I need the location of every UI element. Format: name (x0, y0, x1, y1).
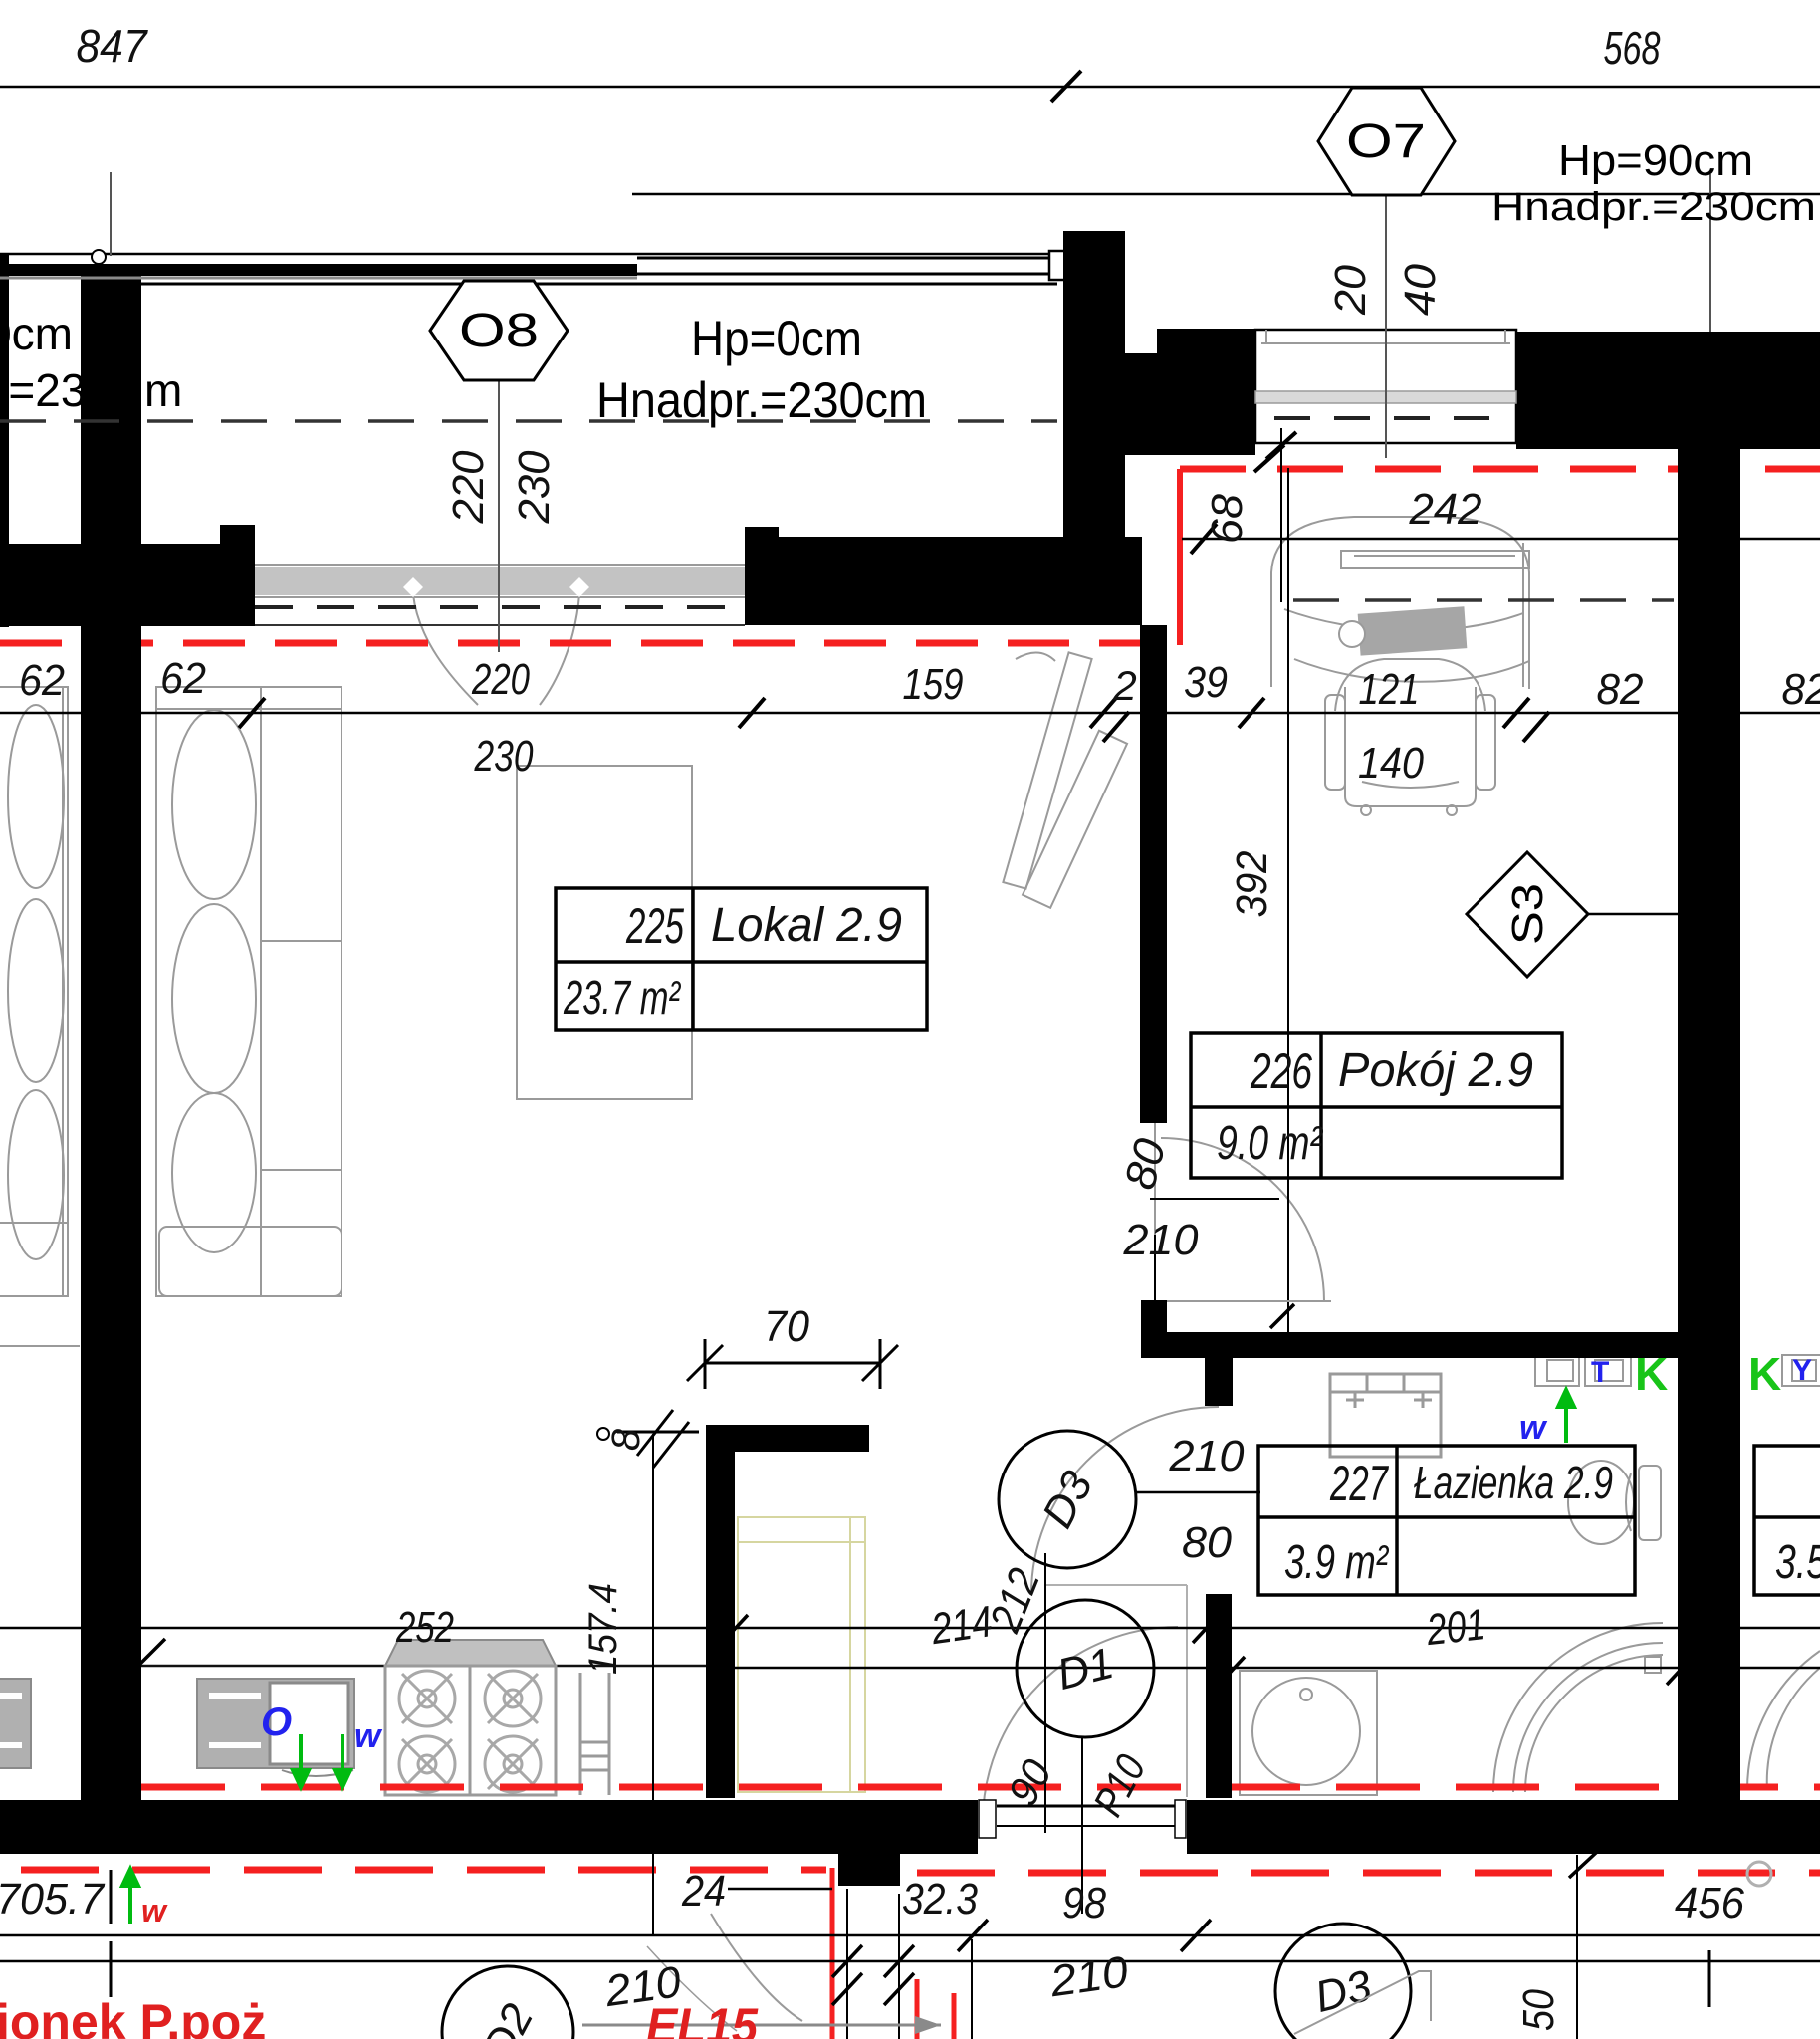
svg-text:3.5: 3.5 (1775, 1536, 1820, 1589)
svg-text:23.7 m²: 23.7 m² (563, 972, 681, 1024)
svg-text:K: K (1635, 1348, 1668, 1400)
svg-text:w: w (354, 1717, 383, 1755)
svg-text:0cm: 0cm (0, 308, 73, 359)
svg-text:225: 225 (625, 898, 684, 954)
svg-text:8: 8 (604, 1428, 648, 1451)
svg-text:159: 159 (903, 660, 964, 709)
svg-text:w: w (141, 1893, 168, 1928)
svg-text:201: 201 (1424, 1600, 1488, 1655)
svg-text:Hnadpr.=230cm: Hnadpr.=230cm (596, 372, 927, 428)
svg-text:50: 50 (1514, 1989, 1563, 2031)
svg-text:82: 82 (1782, 665, 1820, 714)
svg-text:T: T (1591, 1356, 1609, 1389)
svg-text:Łazienka 2.9: Łazienka 2.9 (1414, 1457, 1613, 1508)
svg-text:230: 230 (510, 450, 559, 525)
svg-text:O: O (261, 1700, 292, 1744)
svg-text:62: 62 (160, 654, 206, 703)
svg-text:214: 214 (928, 1597, 996, 1654)
svg-text:2: 2 (1112, 662, 1136, 709)
svg-text:w: w (1519, 1409, 1548, 1447)
svg-text:62: 62 (19, 656, 65, 705)
svg-text:EL15: EL15 (646, 1998, 759, 2039)
svg-text:80: 80 (1182, 1518, 1233, 1567)
svg-text:32.3: 32.3 (902, 1875, 978, 1924)
svg-text:230: 230 (474, 732, 534, 781)
svg-text:70: 70 (764, 1302, 809, 1351)
svg-text:98: 98 (1062, 1879, 1106, 1927)
svg-text:220: 220 (471, 655, 530, 704)
svg-text:3.9 m²: 3.9 m² (1284, 1536, 1390, 1589)
svg-text:Y: Y (1792, 1354, 1812, 1387)
svg-text:121: 121 (1359, 665, 1420, 714)
svg-text:Przedsionek P.poż: Przedsionek P.poż (0, 1994, 266, 2039)
svg-text:220: 220 (444, 450, 493, 525)
svg-text:S3: S3 (1503, 883, 1552, 945)
svg-text:210: 210 (1122, 1216, 1199, 1264)
svg-text:9.0 m²: 9.0 m² (1217, 1117, 1324, 1170)
svg-text:Hp=0cm: Hp=0cm (691, 311, 862, 366)
svg-text:=230: =230 (8, 364, 112, 416)
svg-text:226: 226 (1250, 1043, 1312, 1099)
svg-text:40: 40 (1396, 263, 1445, 316)
svg-text:392: 392 (1228, 851, 1276, 918)
svg-text:242: 242 (1409, 485, 1482, 534)
svg-text:20: 20 (1326, 264, 1375, 316)
svg-text:847: 847 (77, 20, 148, 72)
svg-text:227: 227 (1329, 1456, 1389, 1511)
svg-text:82: 82 (1597, 665, 1644, 714)
svg-text:Lokal 2.9: Lokal 2.9 (711, 899, 902, 952)
svg-text:157.4: 157.4 (581, 1583, 625, 1675)
svg-text:Hp=90cm: Hp=90cm (1558, 136, 1753, 185)
svg-text:68: 68 (1203, 493, 1251, 544)
svg-text:K: K (1748, 1348, 1781, 1400)
svg-text:39: 39 (1184, 658, 1228, 707)
svg-text:568: 568 (1604, 22, 1661, 74)
svg-text:210: 210 (1168, 1432, 1245, 1480)
svg-text:456: 456 (1675, 1879, 1744, 1927)
svg-text:24: 24 (681, 1867, 726, 1916)
svg-text:m: m (144, 364, 182, 416)
svg-text:Pokój 2.9: Pokój 2.9 (1338, 1044, 1533, 1097)
svg-text:O8: O8 (459, 305, 539, 357)
svg-text:140: 140 (1358, 739, 1424, 788)
svg-text:Hnadpr.=230cm: Hnadpr.=230cm (1491, 185, 1816, 229)
svg-text:252: 252 (395, 1603, 454, 1652)
svg-text:O7: O7 (1346, 115, 1426, 168)
svg-text:705.7: 705.7 (0, 1875, 105, 1924)
